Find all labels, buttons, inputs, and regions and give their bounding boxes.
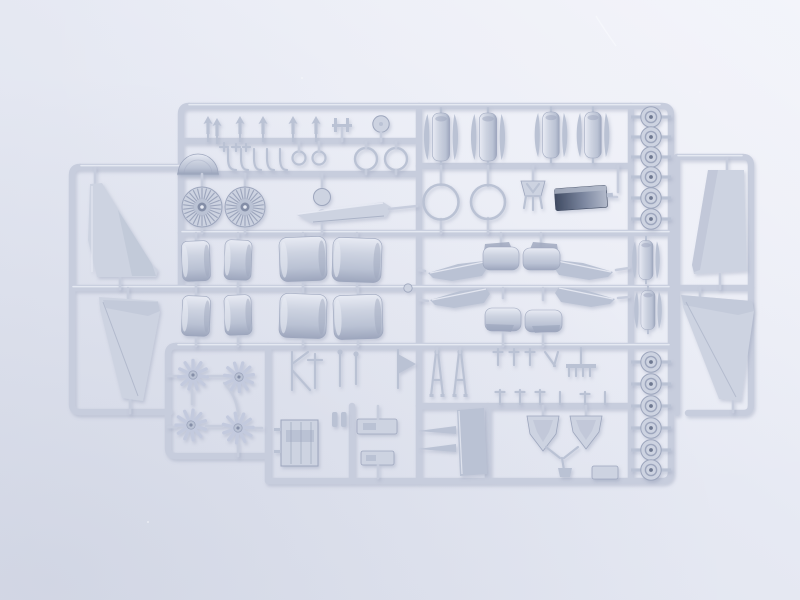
nacelle-half <box>224 295 252 336</box>
nacelle-half-large <box>279 236 328 282</box>
photo-of-model-kit-sprues <box>0 0 800 600</box>
equipment-box-part <box>554 185 613 211</box>
blade-line <box>197 376 207 377</box>
gate-nub <box>404 284 412 292</box>
cylinder-fitting <box>341 412 347 427</box>
nacelle-half-large <box>332 237 383 283</box>
nacelle-half-large <box>279 293 328 339</box>
disc-part <box>314 189 331 206</box>
box-stub <box>607 193 613 197</box>
small-box-part <box>592 466 618 479</box>
blade-line <box>176 424 187 427</box>
trapezoid-panel <box>457 408 487 476</box>
nacelle-half <box>181 241 210 282</box>
nacelle-half <box>224 240 252 281</box>
pin-head <box>353 351 358 356</box>
turbofan-disc <box>225 187 265 227</box>
pin-head <box>337 349 342 354</box>
blade-line <box>192 410 193 420</box>
nacelle-half-large <box>333 294 384 340</box>
small-fittings <box>220 143 250 151</box>
nacelle-half <box>181 296 210 337</box>
fairing-cylinder <box>485 308 521 332</box>
sprue-photo-scene <box>0 0 800 600</box>
cylinder-fitting <box>332 412 338 427</box>
blade-line <box>179 376 189 377</box>
fairing-cylinder <box>525 310 562 333</box>
turbofan-disc <box>182 187 222 227</box>
hatch-louvre-panel <box>274 420 318 466</box>
